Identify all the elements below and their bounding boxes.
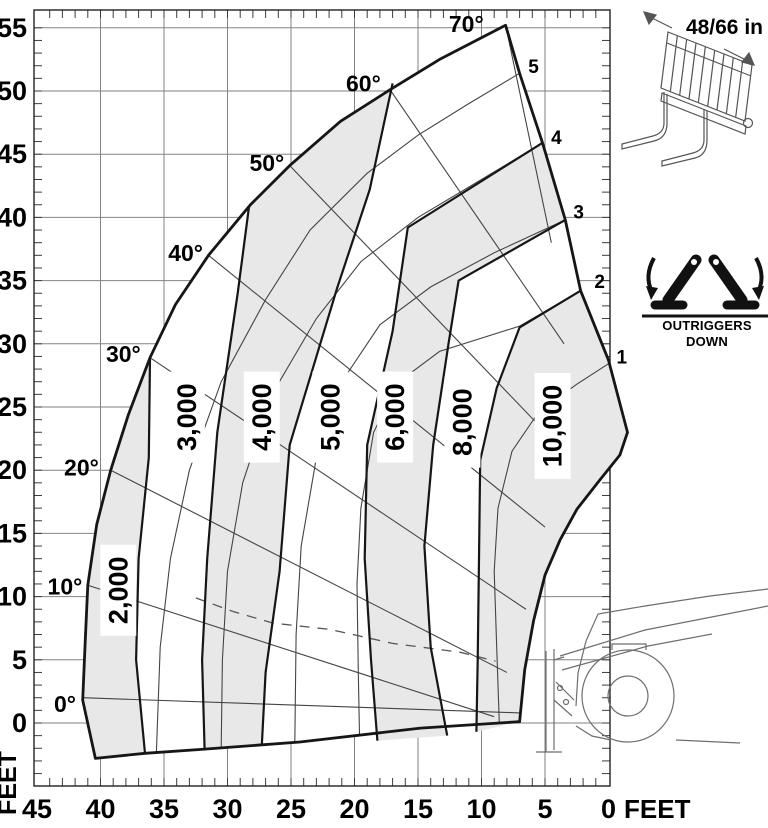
angle-label: 20° — [64, 455, 99, 481]
svg-text:10: 10 — [0, 582, 27, 612]
angle-label: 0° — [54, 691, 76, 717]
svg-text:15: 15 — [403, 794, 433, 824]
extension-label: 1 — [617, 348, 628, 369]
svg-text:35: 35 — [149, 794, 179, 824]
zone-label-3,000: 3,000 — [172, 383, 202, 451]
capacity-chart-canvas: 454035302520151050FEET051015202530354045… — [0, 0, 768, 828]
angle-label: 70° — [449, 11, 484, 37]
fork-width-label: 48/66 in — [686, 16, 763, 40]
svg-text:5: 5 — [12, 645, 27, 675]
x-axis-labels: 454035302520151050FEET — [22, 794, 691, 824]
svg-text:40: 40 — [85, 794, 115, 824]
outriggers-label: OUTRIGGERS — [642, 318, 768, 333]
angle-label: 50° — [249, 150, 284, 176]
svg-text:15: 15 — [0, 518, 27, 548]
svg-text:40: 40 — [0, 202, 27, 232]
svg-text:25: 25 — [276, 794, 306, 824]
outriggers-down-icon — [642, 258, 768, 316]
zone-label-10,000: 10,000 — [538, 385, 568, 468]
angle-label: 40° — [168, 240, 203, 266]
svg-text:45: 45 — [0, 139, 27, 169]
load-chart-figure: 454035302520151050FEET051015202530354045… — [0, 0, 768, 828]
telehandler-silhouette-icon — [536, 589, 768, 752]
extension-label: 3 — [573, 202, 584, 223]
svg-text:50: 50 — [0, 76, 27, 106]
svg-text:5: 5 — [537, 794, 552, 824]
svg-text:20: 20 — [339, 794, 369, 824]
zone-label-4,000: 4,000 — [247, 383, 277, 451]
angle-label: 60° — [346, 70, 381, 96]
extension-label: 2 — [594, 272, 605, 293]
svg-text:10: 10 — [466, 794, 496, 824]
svg-text:0: 0 — [601, 794, 616, 824]
angle-label: 10° — [48, 573, 83, 599]
zone-label-5,000: 5,000 — [315, 383, 345, 451]
svg-text:30: 30 — [0, 329, 27, 359]
zone-label-2,000: 2,000 — [103, 556, 133, 624]
svg-text:30: 30 — [212, 794, 242, 824]
angle-label: 30° — [106, 341, 141, 367]
svg-text:25: 25 — [0, 392, 27, 422]
svg-text:0: 0 — [12, 708, 27, 738]
svg-text:45: 45 — [22, 794, 52, 824]
extension-label: 4 — [551, 128, 562, 149]
outriggers-sublabel: DOWN — [642, 334, 768, 349]
extension-label: 5 — [528, 57, 539, 78]
svg-text:FEET: FEET — [0, 751, 22, 815]
svg-text:35: 35 — [0, 266, 27, 296]
svg-text:55: 55 — [0, 13, 27, 43]
svg-text:FEET: FEET — [624, 794, 691, 824]
y-axis-labels: 0510152025303540455055FEET — [0, 13, 27, 815]
svg-text:20: 20 — [0, 455, 27, 485]
zone-label-8,000: 8,000 — [447, 388, 477, 456]
zone-label-6,000: 6,000 — [380, 383, 410, 451]
